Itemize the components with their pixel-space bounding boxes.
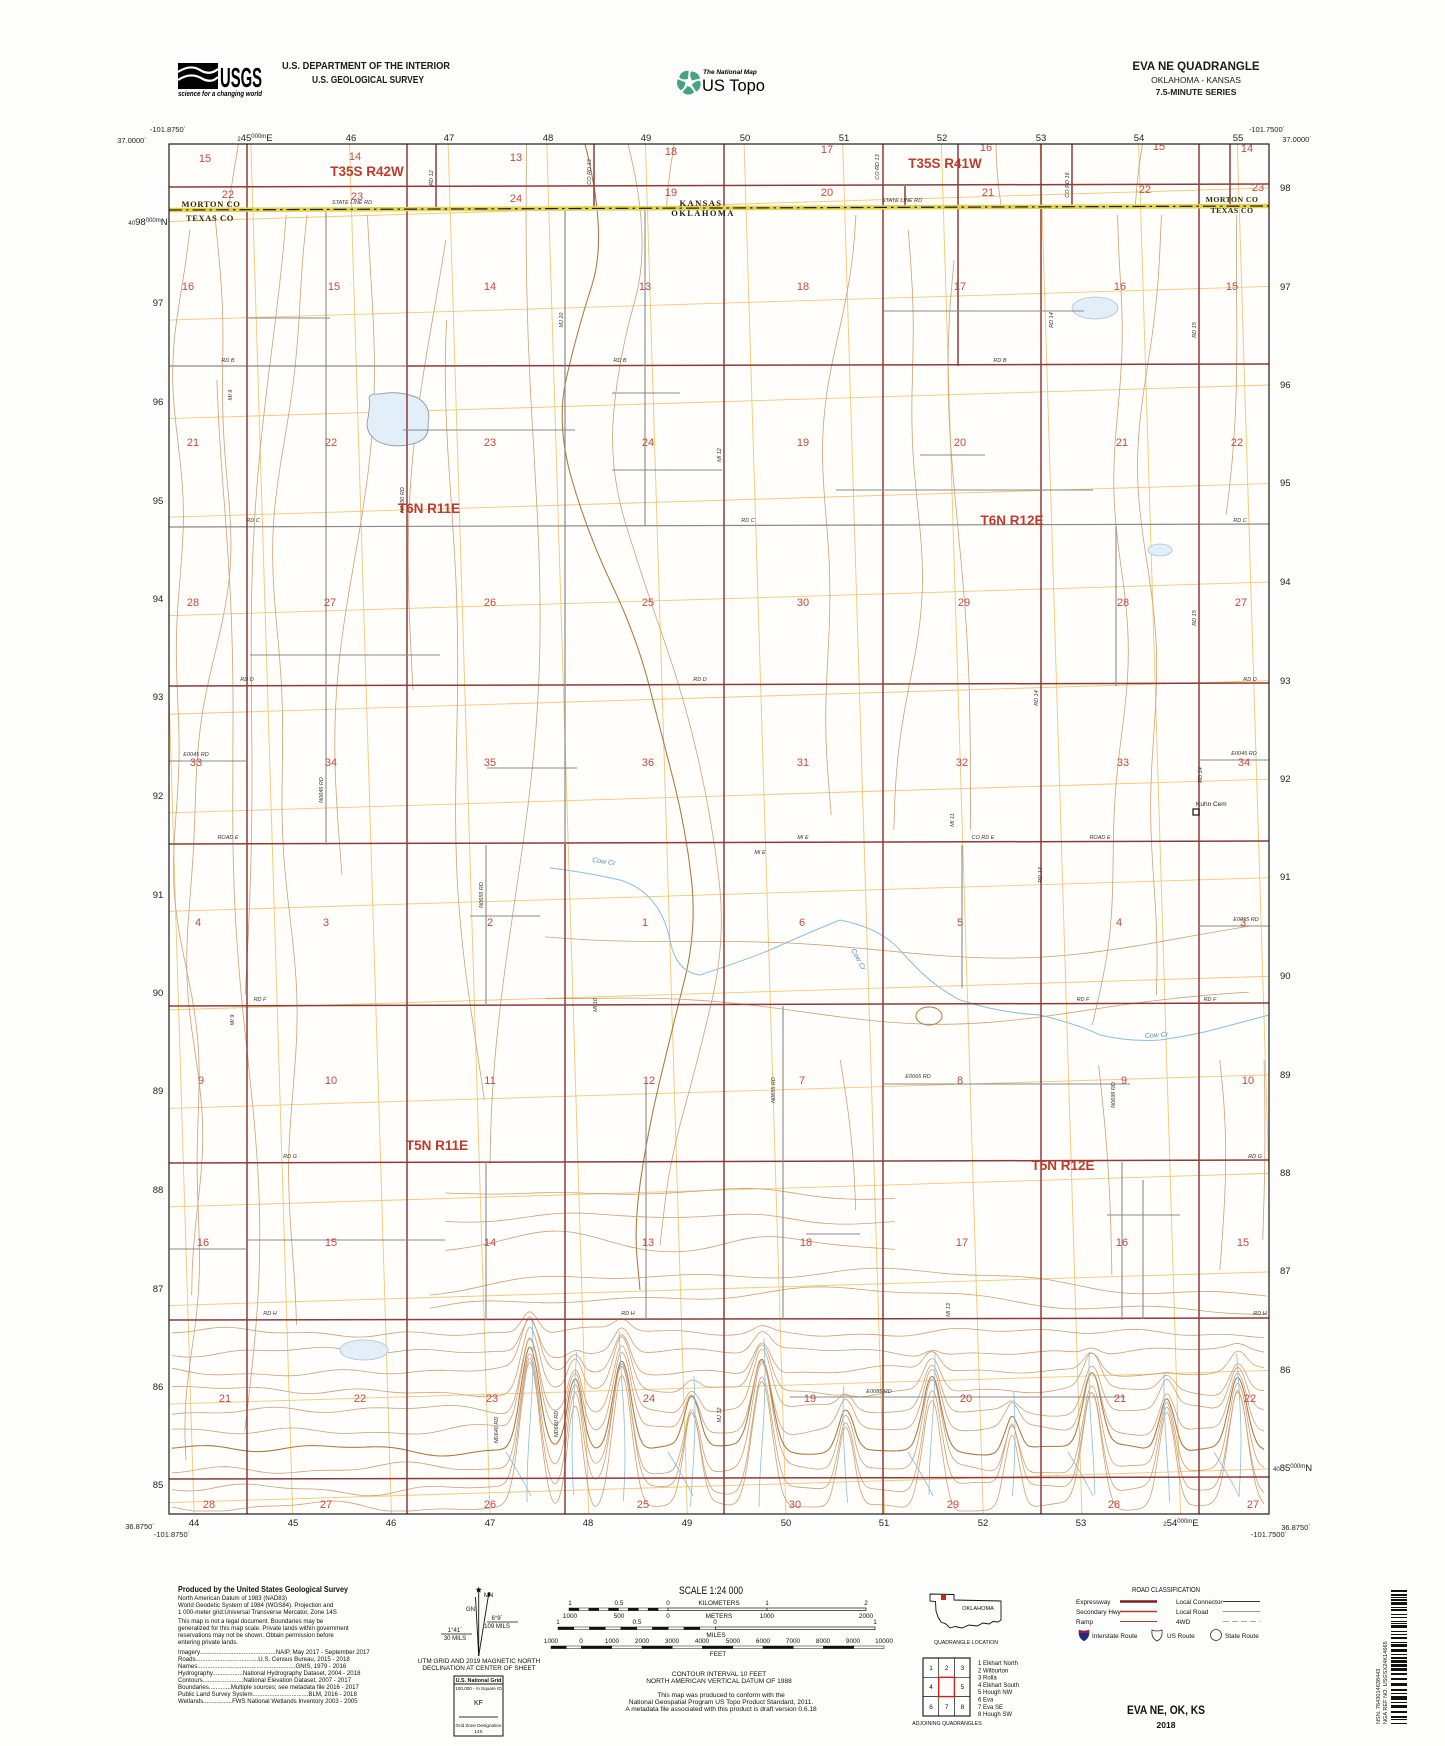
svg-text:RD 14: RD 14 [1034, 690, 1040, 706]
svg-text:Wetlands.................FWS: Wetlands.................FWS National We… [178, 1698, 358, 1705]
svg-text:Local Road: Local Road [1176, 1609, 1209, 1616]
svg-text:44: 44 [189, 1518, 200, 1529]
svg-text:0: 0 [579, 1638, 583, 1645]
svg-text:34: 34 [325, 757, 337, 769]
svg-text:97: 97 [1280, 282, 1291, 293]
svg-text:RD G: RD G [1248, 1154, 1262, 1160]
svg-text:4: 4 [195, 917, 201, 929]
svg-text:3 Rolla: 3 Rolla [978, 1676, 997, 1682]
svg-text:National Geospatial Program US: National Geospatial Program US Topo Prod… [629, 1699, 814, 1706]
svg-text:12: 12 [643, 1075, 655, 1087]
svg-text:14: 14 [349, 151, 361, 163]
svg-text:2 Wilburton: 2 Wilburton [978, 1668, 1008, 1674]
svg-text:27: 27 [324, 597, 336, 609]
svg-text:US Route: US Route [1167, 1633, 1195, 1640]
svg-text:92: 92 [153, 791, 164, 802]
svg-text:46: 46 [386, 1518, 397, 1529]
svg-text:33: 33 [190, 757, 202, 769]
svg-text:18: 18 [800, 1237, 812, 1249]
svg-text:The National Map: The National Map [703, 69, 757, 76]
svg-text:91: 91 [153, 890, 164, 901]
svg-text:ADJOINING QUADRANGLES: ADJOINING QUADRANGLES [912, 1721, 982, 1727]
svg-text:9000: 9000 [846, 1638, 861, 1645]
svg-text:MORTON CO: MORTON CO [1206, 195, 1259, 204]
svg-text:49: 49 [682, 1518, 693, 1529]
svg-text:RD 15: RD 15 [1192, 609, 1198, 626]
svg-text:FEET: FEET [710, 1651, 726, 1658]
svg-text:16: 16 [197, 1237, 209, 1249]
svg-text:14: 14 [1241, 143, 1253, 155]
svg-text:28: 28 [203, 1499, 215, 1511]
svg-text:9: 9 [1121, 1075, 1127, 1087]
svg-text:MI 9: MI 9 [228, 390, 234, 401]
svg-text:RD C: RD C [741, 518, 754, 524]
svg-text:10: 10 [325, 1075, 337, 1087]
svg-text:30: 30 [789, 1499, 801, 1511]
svg-text:MI 11: MI 11 [950, 813, 956, 826]
svg-text:35: 35 [484, 757, 496, 769]
svg-text:22: 22 [325, 437, 337, 449]
svg-text:10: 10 [1242, 1075, 1254, 1087]
svg-text:Grid Zone Designation: Grid Zone Designation [456, 1723, 502, 1728]
svg-text:0.5: 0.5 [633, 1619, 642, 1626]
svg-text:1000: 1000 [605, 1638, 620, 1645]
svg-text:Imagery.......................: Imagery.................................… [178, 1649, 370, 1656]
svg-text:generalized for this map scale: generalized for this map scale. Private … [178, 1625, 349, 1632]
svg-text:51: 51 [879, 1518, 890, 1529]
svg-text:CONTOUR INTERVAL 10 FEET: CONTOUR INTERVAL 10 FEET [672, 1671, 766, 1678]
svg-text:OKLAHOMA: OKLAHOMA [962, 1606, 994, 1612]
svg-text:85: 85 [153, 1480, 164, 1491]
svg-text:RD D: RD D [1243, 677, 1256, 683]
svg-text:87: 87 [153, 1284, 164, 1295]
svg-text:17: 17 [956, 1237, 968, 1249]
svg-text:ROAD E: ROAD E [217, 835, 238, 841]
svg-text:science for a changing world: science for a changing world [178, 91, 263, 98]
svg-text:RD 12: RD 12 [429, 170, 435, 186]
svg-text:7.5-MINUTE SERIES: 7.5-MINUTE SERIES [1156, 87, 1237, 97]
svg-text:OKLAHOMA - KANSAS: OKLAHOMA - KANSAS [1151, 75, 1241, 85]
svg-text:88: 88 [153, 1185, 164, 1196]
svg-text:EVA NE, OK, KS: EVA NE, OK, KS [1127, 1705, 1205, 1717]
svg-text:Local Connector: Local Connector [1176, 1599, 1223, 1606]
svg-text:N0645 RD: N0645 RD [319, 777, 325, 803]
svg-text:MI 10: MI 10 [593, 997, 599, 1012]
svg-text:MI 12: MI 12 [717, 448, 723, 462]
svg-text:ND660 RD: ND660 RD [554, 1411, 560, 1438]
svg-text:-101.8750´: -101.8750´ [154, 1530, 190, 1539]
svg-text:entering private lands.: entering private lands. [178, 1639, 238, 1646]
svg-text:1°41´: 1°41´ [448, 1628, 462, 1634]
svg-text:91: 91 [1280, 872, 1291, 883]
svg-text:92: 92 [1280, 774, 1291, 785]
svg-text:4 Elkhart South: 4 Elkhart South [978, 1683, 1019, 1689]
svg-text:N0655 RD: N0655 RD [479, 882, 485, 908]
svg-text:95: 95 [1280, 478, 1291, 489]
svg-text:1: 1 [642, 917, 648, 929]
svg-text:8000: 8000 [816, 1638, 831, 1645]
svg-text:27: 27 [1235, 597, 1247, 609]
svg-text:Public Land Survey System...: Public Land Survey System...............… [178, 1691, 357, 1698]
svg-text:55: 55 [1233, 133, 1244, 144]
svg-text:95: 95 [153, 496, 164, 507]
svg-text:94: 94 [153, 594, 164, 605]
svg-text:RD F: RD F [1077, 997, 1090, 1003]
svg-text:RD H: RD H [263, 1311, 276, 1317]
svg-text:21: 21 [1116, 437, 1128, 449]
svg-text:47: 47 [444, 133, 455, 144]
svg-text:MI E: MI E [754, 850, 766, 856]
svg-text:4: 4 [1116, 917, 1122, 929]
svg-text:19: 19 [665, 187, 677, 199]
svg-text:18: 18 [797, 281, 809, 293]
svg-text:RD C: RD C [1233, 518, 1246, 524]
svg-text:4: 4 [929, 1684, 933, 1691]
svg-text:24: 24 [642, 437, 654, 449]
svg-text:3000: 3000 [665, 1638, 680, 1645]
svg-text:RD H: RD H [1253, 1311, 1266, 1317]
svg-text:9: 9 [198, 1075, 204, 1087]
svg-text:49: 49 [641, 133, 652, 144]
svg-text:-101.8750´: -101.8750´ [150, 125, 186, 134]
svg-text:22: 22 [1231, 437, 1243, 449]
svg-text:28: 28 [187, 597, 199, 609]
svg-text:2: 2 [864, 1600, 868, 1607]
svg-text:90: 90 [153, 988, 164, 999]
svg-text:RD 14: RD 14 [1049, 312, 1055, 328]
svg-text:500: 500 [614, 1613, 625, 1620]
svg-text:14: 14 [484, 1237, 496, 1249]
svg-text:Contours......................: Contours........................National… [178, 1677, 352, 1684]
svg-text:RD C: RD C [246, 518, 259, 524]
svg-text:30 MILS: 30 MILS [444, 1636, 466, 1642]
svg-text:QUADRANGLE LOCATION: QUADRANGLE LOCATION [934, 1640, 998, 1646]
svg-text:22: 22 [1244, 1393, 1256, 1405]
svg-text:NGA REF NO. USGSX24K14665: NGA REF NO. USGSX24K14665 [1383, 1641, 1389, 1724]
svg-text:T35S R41W: T35S R41W [908, 156, 982, 171]
svg-text:32: 32 [956, 757, 968, 769]
svg-text:RD D: RD D [240, 677, 253, 683]
svg-text:CO RD 13: CO RD 13 [587, 158, 593, 184]
svg-text:T35S R42W: T35S R42W [330, 164, 404, 179]
svg-text:2000: 2000 [859, 1613, 874, 1620]
svg-text:16: 16 [1116, 1237, 1128, 1249]
svg-text:20: 20 [954, 437, 966, 449]
svg-text:7: 7 [799, 1075, 805, 1087]
svg-text:86: 86 [153, 1382, 164, 1393]
svg-text:MI 9: MI 9 [230, 1015, 236, 1026]
svg-text:RD F: RD F [1204, 997, 1217, 1003]
svg-text:0.5: 0.5 [615, 1600, 624, 1607]
svg-text:ND640 RD: ND640 RD [494, 1417, 500, 1444]
svg-text:15: 15 [328, 281, 340, 293]
svg-text:This map was produced to confo: This map was produced to conform with th… [657, 1692, 785, 1699]
svg-text:0: 0 [713, 1619, 717, 1626]
svg-text:RD 14: RD 14 [1038, 867, 1044, 883]
svg-text:5: 5 [961, 1684, 965, 1691]
svg-text:U.S. National Grid: U.S. National Grid [456, 1678, 502, 1684]
svg-text:98: 98 [1280, 183, 1291, 194]
svg-text:21: 21 [1114, 1393, 1126, 1405]
svg-text:5: 5 [957, 917, 963, 929]
svg-text:27: 27 [1247, 1499, 1259, 1511]
svg-text:1 Elkhart North: 1 Elkhart North [978, 1661, 1018, 1667]
svg-text:1: 1 [765, 1600, 769, 1607]
svg-text:North American Datum of 1983 (: North American Datum of 1983 (NAD83) [178, 1595, 287, 1602]
svg-text:1000: 1000 [760, 1613, 775, 1620]
svg-text:4WD: 4WD [1176, 1619, 1191, 1626]
svg-text:26: 26 [484, 1499, 496, 1511]
svg-text:1: 1 [929, 1665, 933, 1672]
svg-text:DECLINATION AT CENTER OF SHEET: DECLINATION AT CENTER OF SHEET [422, 1665, 535, 1672]
svg-text:U.S. DEPARTMENT OF THE INTERIO: U.S. DEPARTMENT OF THE INTERIOR [282, 61, 451, 72]
svg-text:3: 3 [1240, 917, 1246, 929]
svg-text:TEXAS CO: TEXAS CO [186, 213, 234, 223]
svg-text:Hydrography..................N: Hydrography..................National Hy… [178, 1670, 361, 1677]
svg-text:15: 15 [1237, 1237, 1249, 1249]
svg-text:0: 0 [666, 1613, 670, 1620]
svg-text:16: 16 [182, 281, 194, 293]
svg-text:23: 23 [1252, 182, 1264, 194]
svg-text:11: 11 [484, 1075, 495, 1087]
svg-text:3: 3 [323, 917, 329, 929]
svg-text:MI 13: MI 13 [946, 1302, 952, 1317]
svg-text:A metadata file associated wit: A metadata file associated with this pro… [625, 1706, 817, 1713]
svg-text:MORTON CO: MORTON CO [181, 199, 240, 209]
svg-text:EVA NE QUADRANGLE: EVA NE QUADRANGLE [1132, 61, 1259, 73]
svg-text:22: 22 [354, 1393, 366, 1405]
svg-text:50: 50 [740, 133, 751, 144]
svg-text:RD 15: RD 15 [1192, 321, 1198, 338]
svg-text:U.S. GEOLOGICAL SURVEY: U.S. GEOLOGICAL SURVEY [312, 75, 424, 86]
svg-text:Interstate Route: Interstate Route [1092, 1633, 1138, 1640]
svg-text:6: 6 [929, 1704, 933, 1711]
svg-text:T6N R11E: T6N R11E [398, 501, 460, 516]
svg-text:31: 31 [797, 757, 809, 769]
svg-text:Secondary Hwy: Secondary Hwy [1076, 1609, 1122, 1616]
svg-text:47: 47 [485, 1518, 496, 1529]
svg-text:26: 26 [484, 597, 496, 609]
svg-text:CO RD E: CO RD E [972, 835, 995, 841]
svg-text:Ramp: Ramp [1076, 1619, 1093, 1626]
svg-text:RD D: RD D [693, 677, 706, 683]
svg-text:15: 15 [199, 153, 211, 165]
svg-text:TEXAS CO: TEXAS CO [1211, 206, 1254, 215]
svg-text:World Geodetic System of 1984: World Geodetic System of 1984 (WGS84). P… [178, 1602, 333, 1609]
svg-text:6: 6 [799, 917, 805, 929]
svg-text:KANSAS: KANSAS [680, 198, 723, 208]
svg-text:8: 8 [957, 1075, 963, 1087]
svg-text:1000: 1000 [544, 1638, 559, 1645]
svg-text:13: 13 [642, 1237, 654, 1249]
svg-text:29: 29 [958, 597, 970, 609]
svg-text:89: 89 [1280, 1070, 1291, 1081]
svg-text:MI E: MI E [797, 835, 809, 841]
svg-text:37.0000´: 37.0000´ [117, 136, 147, 145]
svg-text:21: 21 [982, 187, 994, 199]
svg-text:36: 36 [642, 757, 654, 769]
svg-text:2018: 2018 [1157, 1720, 1176, 1730]
svg-text:CO RD 13: CO RD 13 [875, 153, 881, 179]
svg-text:State Route: State Route [1225, 1633, 1259, 1640]
svg-text:T5N R11E: T5N R11E [406, 1138, 468, 1153]
svg-text:ROAD E: ROAD E [1089, 835, 1110, 841]
svg-text:-101.7500´: -101.7500´ [1249, 125, 1285, 134]
svg-text:96: 96 [153, 397, 164, 408]
svg-text:SCALE 1:24 000: SCALE 1:24 000 [679, 1585, 743, 1597]
svg-text:T5N R12E: T5N R12E [1031, 1158, 1094, 1173]
svg-text:87: 87 [1280, 1266, 1291, 1277]
svg-text:RD G: RD G [283, 1154, 297, 1160]
svg-text:6 Eva: 6 Eva [978, 1698, 994, 1704]
svg-text:16: 16 [1114, 281, 1126, 293]
svg-text:1000: 1000 [563, 1613, 578, 1620]
svg-text:This map is not a legal docume: This map is not a legal document. Bounda… [178, 1618, 324, 1625]
svg-text:23: 23 [351, 191, 363, 203]
svg-text:53: 53 [1036, 133, 1047, 144]
svg-text:54: 54 [1134, 133, 1145, 144]
svg-text:21: 21 [219, 1393, 231, 1405]
svg-text:51: 51 [839, 133, 850, 144]
svg-text:KILOMETERS: KILOMETERS [698, 1600, 739, 1607]
svg-text:28: 28 [1108, 1499, 1120, 1511]
svg-text:1: 1 [873, 1619, 877, 1626]
svg-text:20: 20 [821, 187, 833, 199]
svg-text:NSN. 7643014638443: NSN. 7643014638443 [1376, 1669, 1382, 1724]
svg-text:1: 1 [568, 1600, 572, 1607]
svg-text:21: 21 [187, 437, 199, 449]
svg-text:33: 33 [1117, 757, 1129, 769]
svg-text:19: 19 [797, 437, 809, 449]
svg-text:29: 29 [947, 1499, 959, 1511]
svg-text:7: 7 [945, 1704, 949, 1711]
svg-text:88: 88 [1280, 1168, 1291, 1179]
svg-text:0: 0 [666, 1600, 670, 1607]
svg-text:97: 97 [153, 298, 164, 309]
svg-text:27: 27 [320, 1499, 332, 1511]
svg-text:Names.........................: Names...................................… [178, 1663, 347, 1670]
svg-text:UTM GRID AND 2019 MAGNETIC NOR: UTM GRID AND 2019 MAGNETIC NORTH [418, 1658, 541, 1665]
svg-text:23: 23 [484, 437, 496, 449]
svg-text:45: 45 [288, 1518, 299, 1529]
svg-text:METERS: METERS [706, 1613, 733, 1620]
svg-text:CO RD 16: CO RD 16 [1065, 171, 1071, 197]
svg-text:RD B: RD B [993, 358, 1006, 364]
svg-text:1 000-meter grid:Universal Tra: 1 000-meter grid:Universal Transverse Me… [178, 1609, 337, 1616]
svg-text:RD B: RD B [613, 358, 626, 364]
svg-text:93: 93 [1280, 676, 1291, 687]
svg-text:US Topo: US Topo [702, 77, 765, 95]
svg-text:3: 3 [961, 1665, 965, 1672]
svg-text:ROAD CLASSIFICATION: ROAD CLASSIFICATION [1132, 1585, 1200, 1594]
svg-text:17: 17 [821, 144, 833, 156]
svg-text:24: 24 [510, 193, 522, 205]
svg-text:28: 28 [1117, 597, 1129, 609]
svg-text:USGS: USGS [220, 62, 262, 93]
svg-text:4000: 4000 [695, 1638, 710, 1645]
svg-text:17: 17 [954, 281, 966, 293]
svg-text:48: 48 [583, 1518, 594, 1529]
svg-text:14S: 14S [474, 1729, 482, 1734]
svg-text:86: 86 [1280, 1365, 1291, 1376]
svg-text:37.0000´: 37.0000´ [1282, 135, 1312, 144]
svg-text:15: 15 [1226, 281, 1238, 293]
svg-text:22: 22 [1139, 184, 1151, 196]
svg-text:50: 50 [781, 1518, 792, 1529]
svg-text:2000: 2000 [635, 1638, 650, 1645]
svg-text:94: 94 [1280, 577, 1291, 588]
svg-text:48: 48 [543, 133, 554, 144]
svg-text:46: 46 [346, 133, 357, 144]
svg-text:OKLAHOMA: OKLAHOMA [671, 208, 735, 218]
svg-text:14: 14 [484, 281, 496, 293]
svg-text:RD H: RD H [621, 1311, 634, 1317]
svg-text:MN: MN [484, 1593, 493, 1599]
svg-text:10000: 10000 [875, 1638, 893, 1645]
svg-text:109 MILS: 109 MILS [484, 1624, 510, 1630]
svg-text:24: 24 [643, 1393, 655, 1405]
svg-text:GN: GN [466, 1607, 475, 1613]
svg-text:RD 14: RD 14 [1198, 767, 1204, 783]
svg-text:6°9´: 6°9´ [491, 1616, 502, 1622]
svg-text:25: 25 [642, 597, 654, 609]
svg-text:MJ 12: MJ 12 [717, 1408, 723, 1423]
svg-text:19: 19 [804, 1393, 816, 1405]
svg-text:T6N R12E: T6N R12E [980, 513, 1043, 528]
svg-text:STATE LINE RD: STATE LINE RD [882, 198, 922, 204]
svg-text:7 Eva SE: 7 Eva SE [978, 1705, 1003, 1711]
svg-text:25: 25 [637, 1499, 649, 1511]
svg-text:93: 93 [153, 692, 164, 703]
svg-text:RD F: RD F [254, 997, 267, 1003]
svg-text:90: 90 [1280, 971, 1291, 982]
svg-text:Kuhn Cem: Kuhn Cem [1196, 801, 1227, 808]
svg-text:MJ 10: MJ 10 [559, 312, 565, 328]
svg-text:52: 52 [978, 1518, 989, 1529]
svg-text:2: 2 [945, 1665, 949, 1672]
svg-text:100,000 - m Square ID: 100,000 - m Square ID [455, 1686, 502, 1691]
svg-text:34: 34 [1238, 757, 1250, 769]
svg-text:RD B: RD B [221, 358, 234, 364]
svg-text:20: 20 [960, 1393, 972, 1405]
svg-text:MILES: MILES [706, 1632, 725, 1639]
svg-text:N0695 RD: N0695 RD [1111, 1082, 1117, 1108]
svg-text:2: 2 [487, 917, 493, 929]
svg-text:N0655 RD: N0655 RD [771, 1077, 777, 1103]
svg-text:E0085 RD: E0085 RD [866, 1389, 891, 1395]
svg-text:reservations may not be shown.: reservations may not be shown. Obtain pe… [178, 1632, 334, 1639]
svg-text:13: 13 [510, 152, 522, 164]
svg-text:KF: KF [474, 1700, 483, 1707]
svg-text:6000: 6000 [756, 1638, 771, 1645]
svg-text:36.8750´: 36.8750´ [125, 1522, 155, 1531]
svg-text:18: 18 [665, 146, 677, 158]
svg-text:Boundaries.............Multipl: Boundaries.............Multiple sources;… [178, 1684, 359, 1691]
svg-text:7000: 7000 [786, 1638, 801, 1645]
svg-text:NORTH AMERICAN VERTICAL DATUM: NORTH AMERICAN VERTICAL DATUM OF 1988 [646, 1678, 792, 1685]
svg-text:Produced by the United States: Produced by the United States Geological… [178, 1585, 348, 1594]
svg-text:52: 52 [937, 133, 948, 144]
svg-text:-101.7500´: -101.7500´ [1251, 1530, 1287, 1539]
svg-text:5000: 5000 [726, 1638, 741, 1645]
svg-text:8 Hough SW: 8 Hough SW [978, 1712, 1012, 1718]
svg-text:96: 96 [1280, 380, 1291, 391]
svg-text:Expressway: Expressway [1076, 1599, 1111, 1606]
svg-text:30: 30 [797, 597, 809, 609]
svg-text:5 Hough NW: 5 Hough NW [978, 1690, 1013, 1696]
svg-text:23: 23 [486, 1393, 498, 1405]
svg-text:89: 89 [153, 1086, 164, 1097]
